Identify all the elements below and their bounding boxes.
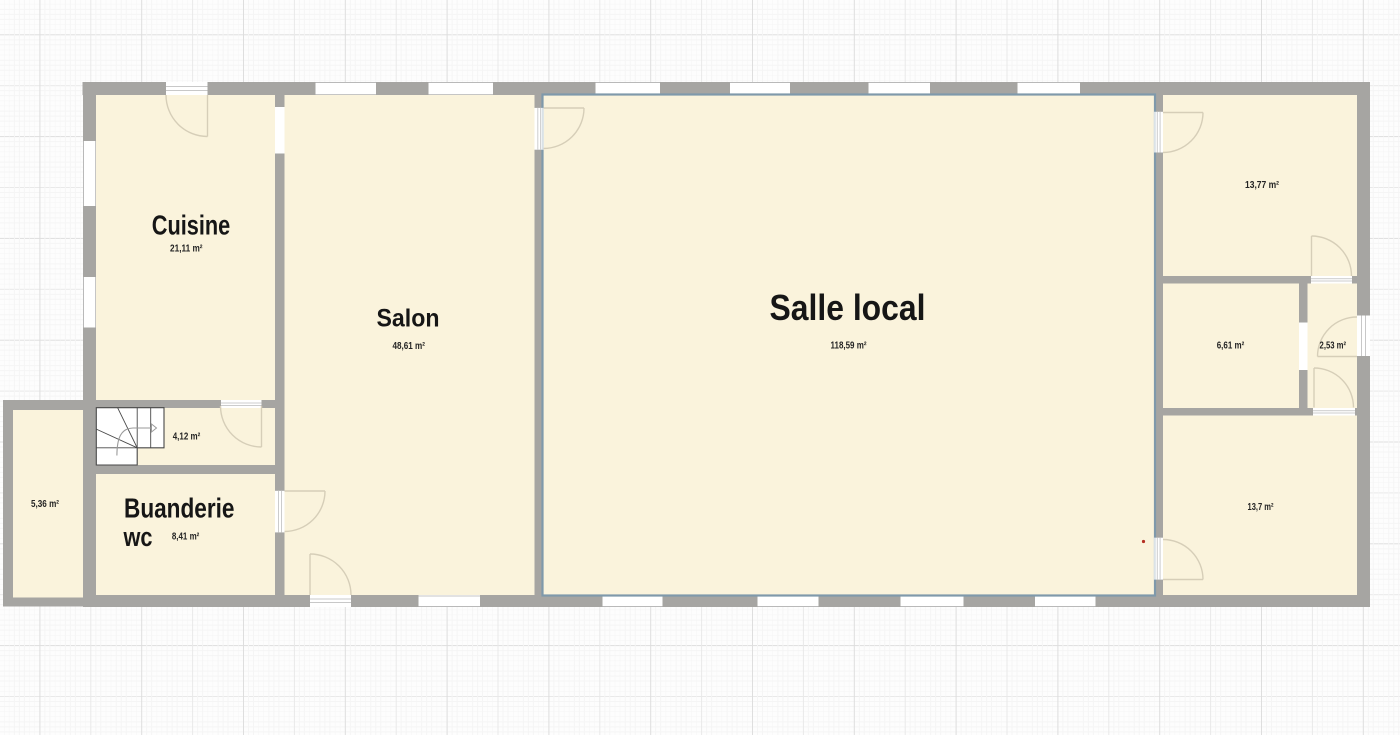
- svg-text:13,77 m²: 13,77 m²: [1245, 180, 1280, 191]
- svg-text:wc: wc: [123, 522, 153, 552]
- svg-text:Salon: Salon: [377, 305, 440, 333]
- svg-text:5,36 m²: 5,36 m²: [31, 499, 60, 510]
- svg-text:4,12 m²: 4,12 m²: [173, 432, 201, 443]
- svg-text:8,41 m²: 8,41 m²: [172, 532, 200, 543]
- svg-text:Cuisine: Cuisine: [152, 210, 231, 241]
- svg-text:Salle local: Salle local: [770, 287, 926, 328]
- svg-text:6,61 m²: 6,61 m²: [1217, 341, 1245, 352]
- svg-text:13,7 m²: 13,7 m²: [1248, 502, 1275, 513]
- svg-text:21,11 m²: 21,11 m²: [170, 244, 203, 255]
- svg-text:118,59 m²: 118,59 m²: [831, 341, 868, 352]
- svg-text:48,61 m²: 48,61 m²: [392, 341, 425, 352]
- svg-text:2,53 m²: 2,53 m²: [1320, 341, 1347, 352]
- svg-text:Buanderie: Buanderie: [124, 492, 235, 523]
